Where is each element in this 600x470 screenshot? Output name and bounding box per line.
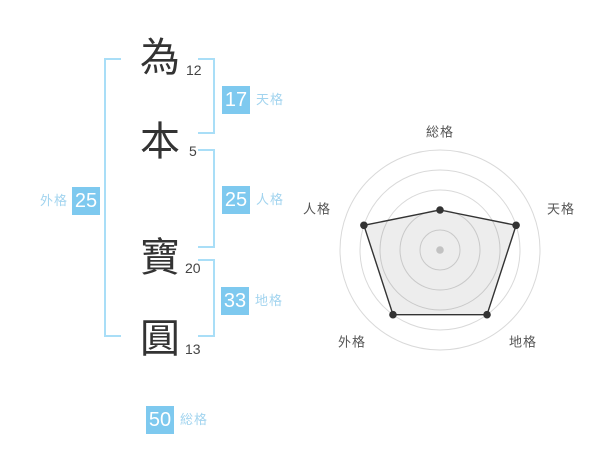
jinkaku-value-badge: 25	[222, 186, 250, 214]
bracket-gaikaku	[104, 58, 121, 337]
name-fortune-panel: 為 12 本 5 寶 20 圓 13 17 天格 25 人格 33 地格 外格 …	[0, 0, 600, 470]
radar-axis-label-jinkaku: 人格	[303, 199, 331, 218]
bracket-tenkaku	[198, 58, 215, 134]
gaikaku-value-badge: 25	[72, 187, 100, 215]
soukaku-label: 総格	[180, 406, 208, 434]
tenkaku-value-badge: 17	[222, 86, 250, 114]
bracket-jinkaku	[198, 149, 215, 248]
radar-axis-label-chikaku: 地格	[509, 332, 537, 351]
radar-axis-label-gaikaku: 外格	[338, 332, 366, 351]
name-character-4: 圓	[138, 318, 182, 360]
chikaku-label: 地格	[255, 287, 283, 315]
radar-axis-label-tenkaku: 天格	[547, 199, 575, 218]
stroke-count-2: 5	[189, 144, 197, 158]
bracket-chikaku	[198, 259, 215, 337]
gaikaku-label: 外格	[40, 187, 68, 215]
stroke-count-4: 13	[185, 342, 201, 356]
chikaku-value-badge: 33	[221, 287, 249, 315]
name-character-2: 本	[138, 121, 182, 163]
name-character-3: 寶	[138, 237, 182, 279]
name-character-1: 為	[138, 37, 182, 79]
tenkaku-label: 天格	[256, 86, 284, 114]
jinkaku-label: 人格	[256, 186, 284, 214]
radar-axis-label-soukaku: 総格	[426, 122, 454, 141]
soukaku-value-badge: 50	[146, 406, 174, 434]
